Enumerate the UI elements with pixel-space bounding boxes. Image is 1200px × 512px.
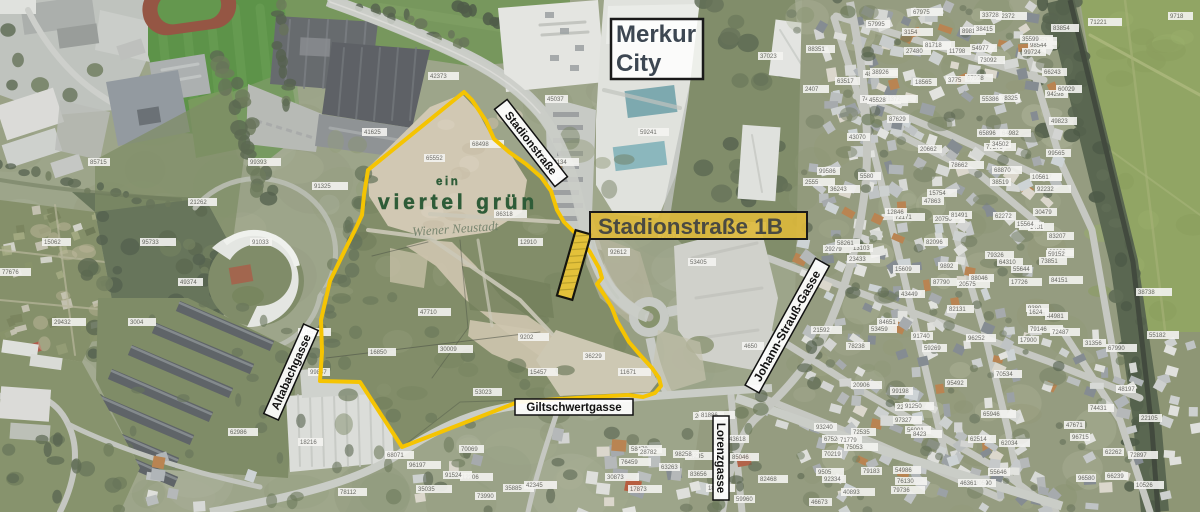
svg-text:City: City [616,50,662,77]
svg-text:47863: 47863 [924,199,941,205]
svg-text:30009: 30009 [440,347,457,353]
svg-text:96252: 96252 [968,336,985,342]
svg-text:38926: 38926 [872,70,889,76]
svg-text:68498: 68498 [472,142,489,148]
svg-text:55646: 55646 [990,470,1007,476]
svg-text:95492: 95492 [947,381,964,387]
svg-text:98258: 98258 [675,452,692,458]
svg-text:59241: 59241 [640,130,657,136]
svg-text:viertel grün: viertel grün [378,191,538,214]
svg-text:20662: 20662 [920,147,937,153]
svg-text:Lorenzgasse: Lorenzgasse [714,423,726,493]
svg-text:77676: 77676 [2,270,19,276]
svg-text:31356: 31356 [1085,341,1102,347]
svg-text:34502: 34502 [992,142,1009,148]
svg-text:2407: 2407 [805,87,819,93]
svg-text:72897: 72897 [1130,453,1147,459]
svg-text:82468: 82468 [760,477,777,483]
svg-text:91740: 91740 [913,334,930,340]
svg-text:29279: 29279 [825,247,842,253]
svg-text:12846: 12846 [887,210,904,216]
svg-text:Giltschwertgasse: Giltschwertgasse [526,402,621,414]
svg-text:35035: 35035 [418,487,435,493]
svg-text:67990: 67990 [1108,346,1125,352]
svg-text:92334: 92334 [824,477,841,483]
svg-text:43070: 43070 [849,135,866,141]
svg-text:15062: 15062 [44,240,61,246]
svg-text:63263: 63263 [661,465,678,471]
svg-text:91033: 91033 [252,240,269,246]
svg-text:57995: 57995 [868,22,885,28]
svg-text:82096: 82096 [926,240,943,246]
svg-text:18565: 18565 [915,80,932,86]
svg-text:99393: 99393 [250,160,267,166]
svg-text:55386: 55386 [982,97,999,103]
svg-text:83656: 83656 [690,472,707,478]
svg-text:81491: 81491 [951,213,968,219]
svg-text:15564: 15564 [1017,222,1034,228]
svg-text:87629: 87629 [889,117,906,123]
svg-text:62272: 62272 [995,214,1012,220]
svg-text:38519: 38519 [992,180,1009,186]
svg-text:65552: 65552 [426,156,443,162]
svg-text:40893: 40893 [843,490,860,496]
svg-text:76459: 76459 [621,460,638,466]
svg-text:1624: 1624 [1029,310,1043,316]
svg-text:16850: 16850 [370,350,387,356]
svg-text:99586: 99586 [819,169,836,175]
svg-text:73990: 73990 [477,494,494,500]
svg-text:38738: 38738 [1138,290,1155,296]
svg-text:5580: 5580 [860,174,874,180]
svg-text:42345: 42345 [526,483,543,489]
svg-text:59152: 59152 [1048,252,1065,258]
svg-text:21262: 21262 [190,200,207,206]
svg-text:68071: 68071 [387,453,404,459]
svg-text:88351: 88351 [808,47,825,53]
svg-text:54986: 54986 [895,468,912,474]
svg-text:85046: 85046 [732,455,749,461]
svg-text:70219: 70219 [824,452,841,458]
svg-text:83207: 83207 [1049,234,1066,240]
svg-text:66243: 66243 [1044,70,1061,76]
svg-text:20906: 20906 [853,383,870,389]
svg-text:9202: 9202 [520,335,534,341]
svg-text:48197: 48197 [1118,387,1135,393]
svg-text:35599: 35599 [1022,37,1039,43]
svg-text:91325: 91325 [314,184,331,190]
svg-text:84151: 84151 [1051,278,1068,284]
svg-text:78662: 78662 [951,163,968,169]
svg-text:79183: 79183 [863,469,880,475]
svg-text:79736: 79736 [893,488,910,494]
svg-text:23433: 23433 [849,257,866,263]
svg-text:36229: 36229 [585,354,602,360]
svg-text:53405: 53405 [690,260,707,266]
svg-text:62986: 62986 [230,430,247,436]
svg-text:70069: 70069 [461,447,478,453]
svg-text:95733: 95733 [142,240,159,246]
svg-text:45528: 45528 [869,98,886,104]
svg-text:22105: 22105 [1141,416,1158,422]
svg-text:65946: 65946 [983,412,1000,418]
svg-text:74431: 74431 [1090,406,1107,412]
svg-text:73851: 73851 [1041,259,1058,265]
svg-text:58261: 58261 [837,241,854,247]
svg-text:41625: 41625 [364,130,381,136]
svg-text:92612: 92612 [610,250,627,256]
svg-text:63517: 63517 [837,79,854,85]
svg-text:15457: 15457 [530,370,547,376]
svg-text:33728: 33728 [982,13,999,19]
svg-text:10526: 10526 [1136,483,1153,489]
svg-text:72487: 72487 [1052,330,1069,336]
svg-text:79326: 79326 [987,253,1004,259]
svg-text:91524: 91524 [445,473,462,479]
svg-text:12910: 12910 [520,240,537,246]
svg-text:9892: 9892 [940,264,954,270]
svg-text:70534: 70534 [996,372,1013,378]
svg-text:87790: 87790 [933,280,950,286]
svg-text:9718: 9718 [1170,14,1184,20]
svg-text:53459: 53459 [871,327,888,333]
svg-text:79146: 79146 [1030,327,1047,333]
svg-text:17726: 17726 [1011,280,1028,286]
svg-text:59269: 59269 [924,346,941,352]
svg-text:62514: 62514 [970,437,987,443]
svg-text:68870: 68870 [994,168,1011,174]
svg-text:47710: 47710 [420,310,437,316]
svg-text:65896: 65896 [979,131,996,137]
svg-text:97327: 97327 [895,418,912,424]
svg-text:36243: 36243 [830,187,847,193]
svg-text:18216: 18216 [300,440,317,446]
svg-text:3004: 3004 [130,320,144,326]
svg-text:4650: 4650 [744,344,758,350]
svg-text:62034: 62034 [1001,441,1018,447]
svg-text:29432: 29432 [54,320,71,326]
svg-text:67975: 67975 [913,10,930,16]
svg-text:71779: 71779 [840,438,857,444]
svg-text:75053: 75053 [846,445,863,451]
svg-text:83854: 83854 [1053,26,1070,32]
svg-text:49823: 49823 [1051,119,1068,125]
svg-text:15754: 15754 [929,191,946,197]
svg-text:3775: 3775 [948,78,962,84]
svg-text:66239: 66239 [1107,474,1124,480]
svg-text:54977: 54977 [972,46,989,52]
svg-text:38415: 38415 [976,27,993,33]
svg-text:45037: 45037 [547,97,564,103]
svg-text:49374: 49374 [180,280,197,286]
svg-text:55644: 55644 [1013,267,1030,273]
svg-text:99565: 99565 [1048,151,1065,157]
svg-text:99198: 99198 [892,389,909,395]
svg-text:91250: 91250 [905,404,922,410]
svg-text:28782: 28782 [640,450,657,456]
svg-text:99724: 99724 [1024,50,1041,56]
svg-text:37023: 37023 [760,54,777,60]
svg-text:17900: 17900 [1020,338,1037,344]
svg-text:96715: 96715 [1072,435,1089,441]
svg-text:85715: 85715 [90,160,107,166]
svg-text:35885: 35885 [505,486,522,492]
svg-text:15609: 15609 [895,267,912,273]
svg-text:43449: 43449 [901,292,918,298]
svg-text:46673: 46673 [811,500,828,506]
svg-text:Merkur: Merkur [616,21,696,48]
svg-text:81718: 81718 [925,43,942,49]
svg-text:62262: 62262 [1105,450,1122,456]
svg-text:11798: 11798 [949,49,966,55]
svg-text:9505: 9505 [818,470,832,476]
svg-text:96197: 96197 [409,463,426,469]
svg-text:76130: 76130 [897,479,914,485]
svg-text:43618: 43618 [729,437,746,443]
svg-text:71221: 71221 [1090,20,1107,26]
svg-text:59960: 59960 [736,497,753,503]
svg-text:93240: 93240 [816,425,833,431]
svg-text:46361: 46361 [960,481,977,487]
svg-text:92232: 92232 [1037,187,1054,193]
svg-text:73092: 73092 [980,58,997,64]
svg-text:ein: ein [436,176,460,188]
svg-text:30479: 30479 [1035,210,1052,216]
svg-text:53023: 53023 [475,390,492,396]
svg-text:11671: 11671 [620,370,637,376]
svg-text:Stadionstraße 1B: Stadionstraße 1B [598,214,783,239]
svg-text:96580: 96580 [1078,476,1095,482]
svg-text:84651: 84651 [879,320,896,326]
svg-text:27480: 27480 [906,49,923,55]
svg-text:55182: 55182 [1149,333,1166,339]
svg-text:21592: 21592 [813,328,830,334]
svg-text:10561: 10561 [1032,175,1049,181]
svg-text:20575: 20575 [959,282,976,288]
svg-text:47671: 47671 [1066,423,1083,429]
svg-text:2555: 2555 [805,180,819,186]
svg-text:8423: 8423 [913,432,927,438]
svg-text:30873: 30873 [607,475,624,481]
svg-text:44981: 44981 [1047,314,1064,320]
svg-text:60029: 60029 [1058,87,1075,93]
svg-text:3154: 3154 [904,30,918,36]
svg-text:78112: 78112 [340,490,357,496]
svg-text:17873: 17873 [630,487,647,493]
svg-text:42373: 42373 [430,74,447,80]
svg-text:78238: 78238 [848,344,865,350]
svg-text:72535: 72535 [853,430,870,436]
svg-text:82131: 82131 [949,307,966,313]
